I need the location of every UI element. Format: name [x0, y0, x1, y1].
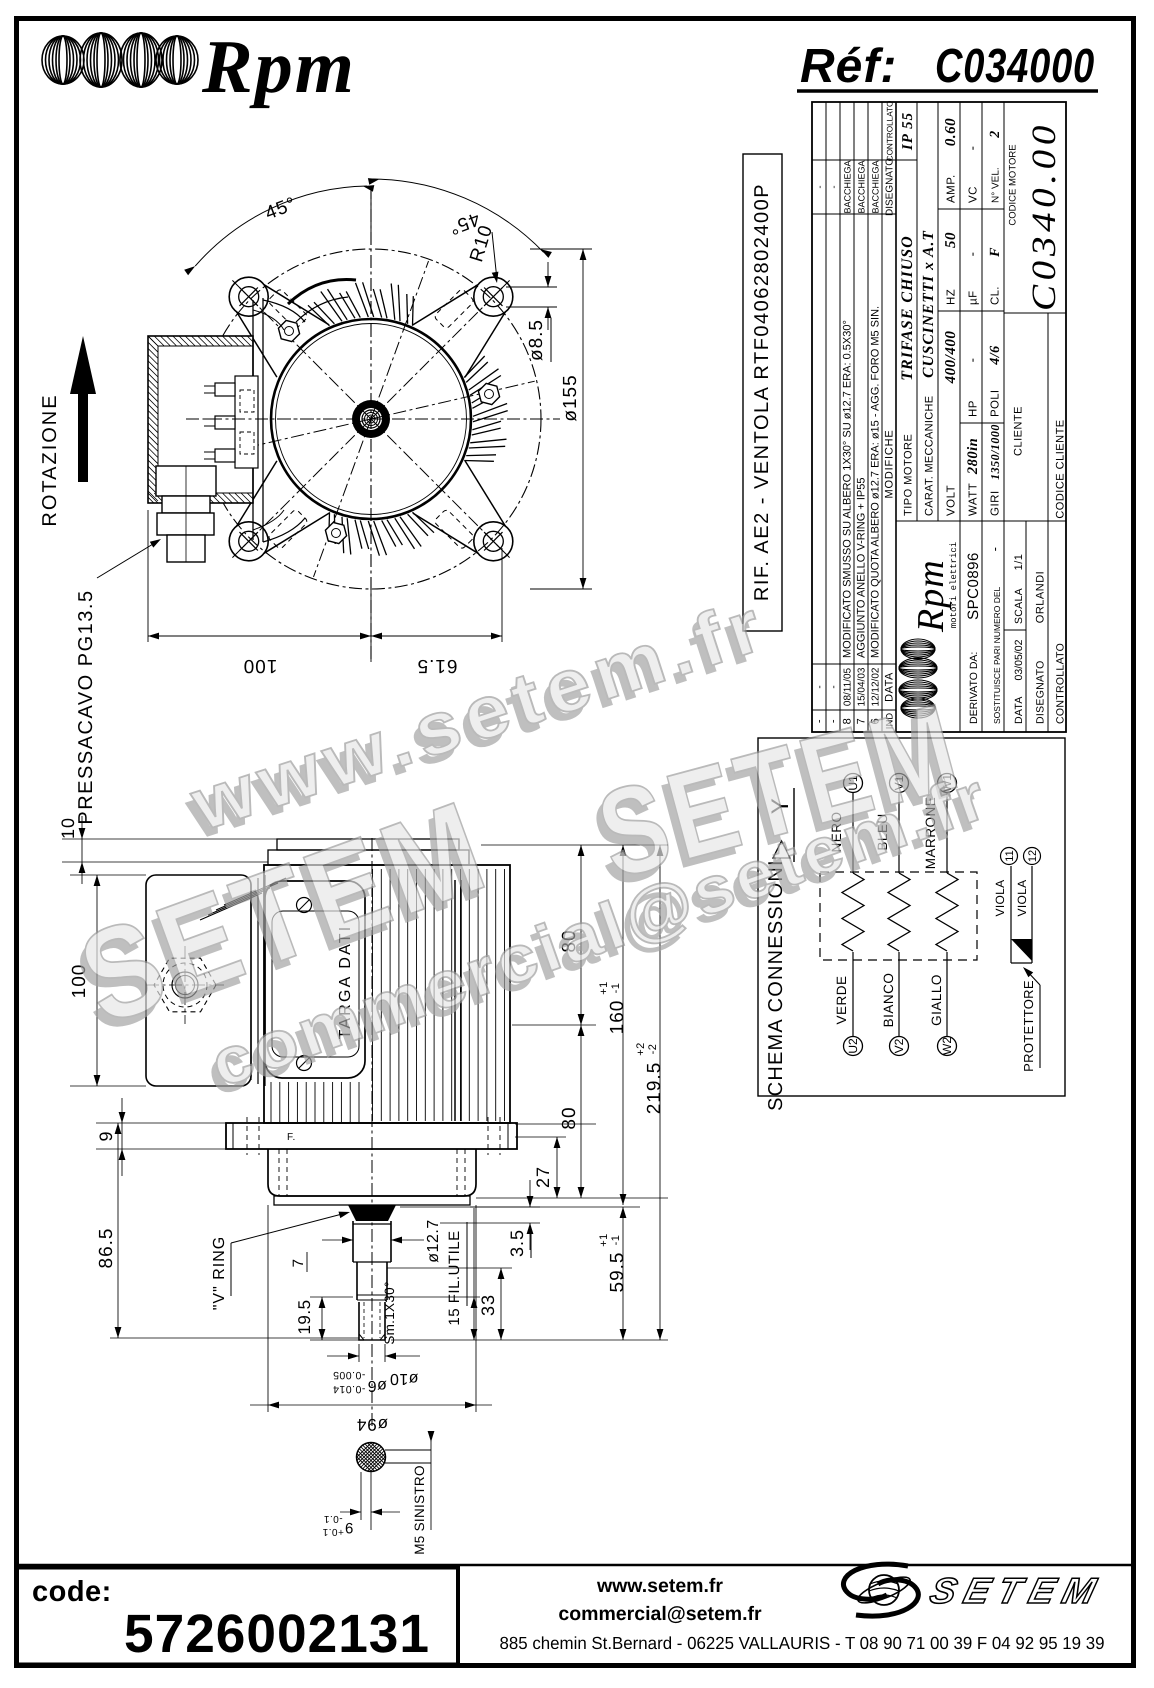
svg-text:+1: +1	[598, 1233, 610, 1247]
svg-text:11: 11	[1004, 850, 1016, 861]
svg-text:SCALA: SCALA	[1013, 588, 1025, 624]
svg-text:BACCHIEGA: BACCHIEGA	[843, 160, 853, 213]
svg-text:RIF. AE2 - VENTOLA RTF04062802: RIF. AE2 - VENTOLA RTF04062802400P	[751, 183, 773, 601]
svg-text:AGGIUNTO ANELLO V-RING + IP55: AGGIUNTO ANELLO V-RING + IP55	[856, 478, 868, 658]
svg-text:03/05/02: 03/05/02	[1013, 639, 1025, 680]
svg-text:BACCHIEGA: BACCHIEGA	[857, 160, 867, 213]
svg-text:TIPO MOTORE: TIPO MOTORE	[903, 434, 915, 516]
svg-text:PROTETTORE: PROTETTORE	[1021, 980, 1036, 1072]
svg-text:-2: -2	[647, 1044, 659, 1055]
svg-text:F.: F.	[287, 1132, 296, 1143]
svg-text:motori elettrici: motori elettrici	[949, 542, 959, 628]
svg-text:2: 2	[988, 130, 1003, 139]
svg-text:Réf:: Réf:	[800, 40, 897, 93]
svg-text:CUSCINETTI x A.T: CUSCINETTI x A.T	[920, 230, 937, 378]
svg-text:MODIFICATO QUOTA ALBERO ø12.7: MODIFICATO QUOTA ALBERO ø12.7 ERA: ø15 -…	[870, 306, 882, 658]
svg-text:POLI: POLI	[990, 390, 1002, 417]
svg-text:F: F	[988, 247, 1003, 258]
svg-text:CODICE CLIENTE: CODICE CLIENTE	[1055, 419, 1067, 518]
svg-text:DERIVATO DA:: DERIVATO DA:	[968, 652, 980, 724]
svg-text:TRIFASE CHIUSO: TRIFASE CHIUSO	[899, 235, 916, 380]
svg-text:ROTAZIONE: ROTAZIONE	[39, 393, 61, 526]
svg-text:-: -	[815, 685, 826, 688]
svg-text:-: -	[965, 146, 980, 151]
svg-text:M5 SINISTRO: M5 SINISTRO	[412, 1465, 427, 1555]
svg-text:-: -	[815, 186, 825, 189]
svg-text:HP: HP	[968, 400, 980, 417]
svg-text:commercial@setem.fr: commercial@setem.fr	[558, 1603, 762, 1625]
svg-text:ø94: ø94	[356, 1415, 388, 1434]
svg-text:CARAT. MECCANICHE: CARAT. MECCANICHE	[924, 396, 936, 516]
svg-text:61.5: 61.5	[417, 655, 458, 676]
svg-text:V2: V2	[892, 1038, 906, 1053]
svg-text:CONTROLLATO: CONTROLLATO	[886, 101, 895, 162]
svg-text:MODIFICHE: MODIFICHE	[884, 430, 896, 499]
svg-text:Sm.1X30°: Sm.1X30°	[382, 1281, 397, 1344]
svg-text:19.5: 19.5	[295, 1299, 314, 1334]
svg-text:PRESSACAVO PG13.5: PRESSACAVO PG13.5	[75, 589, 97, 824]
svg-text:Rpm: Rpm	[910, 559, 952, 633]
svg-text:+2: +2	[635, 1042, 647, 1056]
svg-text:4/6: 4/6	[988, 345, 1003, 365]
svg-text:50: 50	[943, 232, 959, 248]
svg-text:AMP.: AMP.	[946, 174, 958, 203]
svg-text:code:: code:	[32, 1576, 112, 1608]
svg-text:N° VEL.: N° VEL.	[991, 167, 1002, 203]
svg-text:160: 160	[607, 1000, 628, 1035]
svg-text:DISEGNATO: DISEGNATO	[885, 158, 896, 216]
svg-text:C034000: C034000	[935, 40, 1095, 93]
svg-text:280in: 280in	[965, 438, 981, 475]
svg-text:ø155: ø155	[560, 374, 581, 421]
svg-text:86.5: 86.5	[96, 1228, 117, 1269]
svg-text:IP 55: IP 55	[900, 112, 916, 151]
svg-text:VOLT: VOLT	[946, 485, 958, 516]
svg-text:VERDE: VERDE	[834, 975, 849, 1024]
svg-text:885 chemin St.Bernard - 0622: 885 chemin St.Bernard - 06225 VALLAURIS …	[500, 1633, 1105, 1653]
svg-text:CODICE MOTORE: CODICE MOTORE	[1008, 144, 1019, 225]
svg-text:7: 7	[290, 1259, 307, 1268]
svg-text:"V" RING: "V" RING	[211, 1236, 228, 1310]
svg-text:VIOLA: VIOLA	[1015, 880, 1029, 917]
svg-text:400/400: 400/400	[943, 331, 959, 385]
svg-text:27: 27	[533, 1166, 553, 1188]
svg-text:CLIENTE: CLIENTE	[1013, 406, 1025, 456]
svg-text:CONTROLLATO: CONTROLLATO	[1055, 643, 1067, 724]
svg-text:W2: W2	[940, 1037, 954, 1055]
svg-text:GIRI: GIRI	[990, 490, 1002, 516]
svg-text:9: 9	[345, 1519, 354, 1536]
svg-text:-: -	[829, 685, 840, 688]
svg-text:DATA: DATA	[1013, 696, 1025, 724]
svg-text:ø10: ø10	[389, 1370, 418, 1387]
svg-text:33: 33	[478, 1294, 498, 1316]
svg-text:1/1: 1/1	[1013, 554, 1025, 571]
svg-text:-: -	[987, 547, 1002, 552]
svg-text:SOSTITUISCE PARI NUMERO DEL: SOSTITUISCE PARI NUMERO DEL	[992, 586, 1002, 724]
svg-text:-0.014: -0.014	[333, 1383, 366, 1395]
svg-text:-: -	[965, 358, 980, 363]
svg-text:-0.1: -0.1	[323, 1513, 342, 1524]
svg-text:-1: -1	[610, 1235, 622, 1246]
svg-text:WATT: WATT	[968, 483, 980, 516]
svg-text:12: 12	[1027, 850, 1039, 862]
svg-text:3.5: 3.5	[507, 1229, 527, 1257]
svg-text:www.setem.fr: www.setem.fr	[596, 1575, 723, 1597]
svg-text:100: 100	[243, 655, 278, 676]
svg-text:ORLANDI: ORLANDI	[1035, 571, 1047, 623]
svg-text:219.5: 219.5	[644, 1062, 665, 1115]
svg-text:Rpm: Rpm	[201, 25, 356, 109]
svg-text:59.5: 59.5	[607, 1252, 628, 1293]
svg-text:C0340.00: C0340.00	[1026, 121, 1063, 311]
svg-text:10: 10	[58, 817, 78, 839]
svg-text:BACCHIEGA: BACCHIEGA	[871, 160, 881, 213]
svg-text:ø8.5: ø8.5	[526, 319, 547, 361]
svg-text:DISEGNATO: DISEGNATO	[1035, 660, 1047, 724]
svg-text:1350/1000: 1350/1000	[988, 424, 1002, 480]
svg-text:CL.: CL.	[990, 286, 1002, 305]
svg-text:0.60: 0.60	[943, 118, 959, 146]
svg-text:BIANCO: BIANCO	[881, 973, 896, 1028]
svg-text:ø6: ø6	[367, 1377, 387, 1394]
svg-text:+1: +1	[598, 981, 610, 995]
svg-text:HZ: HZ	[946, 289, 958, 305]
svg-text:-: -	[829, 186, 839, 189]
svg-text:µF: µF	[968, 290, 980, 305]
svg-text:15 FIL.UTILE: 15 FIL.UTILE	[446, 1230, 463, 1325]
svg-text:GIALLO: GIALLO	[929, 974, 944, 1026]
svg-text:-0.005: -0.005	[333, 1369, 366, 1381]
svg-text:SPC0896: SPC0896	[965, 552, 982, 620]
svg-text:80: 80	[559, 1106, 580, 1129]
svg-text:-: -	[965, 252, 980, 257]
svg-text:5726002131: 5726002131	[124, 1604, 430, 1664]
svg-text:VC: VC	[968, 186, 980, 203]
svg-text:SETEM: SETEM	[926, 1570, 1108, 1611]
svg-text:9: 9	[96, 1130, 116, 1141]
svg-text:+0.1: +0.1	[322, 1526, 344, 1537]
svg-text:MODIFICATO SMUSSO SU ALBERO 1X: MODIFICATO SMUSSO SU ALBERO 1X30° SU ø12…	[842, 320, 854, 658]
svg-text:-1: -1	[610, 983, 622, 994]
svg-text:ø12.7: ø12.7	[425, 1219, 442, 1262]
svg-text:VIOLA: VIOLA	[993, 880, 1007, 917]
svg-text:U2: U2	[846, 1038, 860, 1054]
